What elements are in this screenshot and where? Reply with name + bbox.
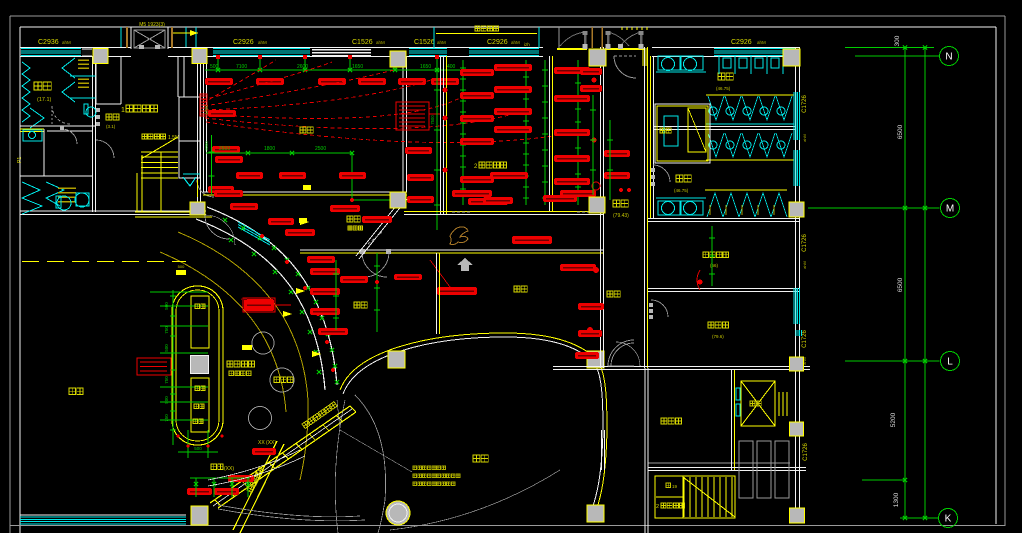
svg-text:500: 500 xyxy=(164,302,169,310)
svg-text:3200: 3200 xyxy=(204,141,209,151)
svg-text:C2926: C2926 xyxy=(731,39,752,46)
svg-text:(79.6): (79.6) xyxy=(712,334,724,339)
svg-text:750: 750 xyxy=(164,376,169,384)
svg-text:M5 1923(3): M5 1923(3) xyxy=(139,22,165,28)
svg-text:6500: 6500 xyxy=(897,124,904,139)
svg-text:C2926: C2926 xyxy=(487,39,508,46)
svg-text:ahM: ahM xyxy=(802,261,807,269)
svg-text:C1726: C1726 xyxy=(803,443,809,461)
svg-text:(3.1): (3.1) xyxy=(106,124,116,129)
svg-text:2600: 2600 xyxy=(297,64,308,70)
svg-text:C1526: C1526 xyxy=(352,39,373,46)
svg-text:2600: 2600 xyxy=(219,146,230,152)
svg-text:N: N xyxy=(945,52,952,63)
svg-text:1650: 1650 xyxy=(352,64,363,70)
svg-text:750: 750 xyxy=(164,326,169,334)
svg-text:C1726: C1726 xyxy=(802,95,808,113)
svg-text:ahM: ahM xyxy=(62,40,71,45)
svg-text:(46.75): (46.75) xyxy=(716,86,731,91)
svg-text:19: 19 xyxy=(672,484,678,489)
svg-text:C1726: C1726 xyxy=(802,330,808,348)
svg-text:500: 500 xyxy=(164,396,169,404)
svg-text:6500: 6500 xyxy=(897,277,904,292)
svg-text:P1: P1 xyxy=(17,157,23,163)
svg-text:7100: 7100 xyxy=(236,64,247,70)
svg-text:(79.43): (79.43) xyxy=(613,213,629,219)
svg-text:L: L xyxy=(947,357,953,368)
svg-text:(46.75): (46.75) xyxy=(674,188,689,193)
svg-text:(66): (66) xyxy=(710,263,719,268)
svg-text:ahM: ahM xyxy=(511,40,520,45)
svg-text:ahM: ahM xyxy=(757,40,766,45)
svg-text:1: 1 xyxy=(121,107,125,114)
svg-text:500: 500 xyxy=(210,64,219,70)
svg-text:500: 500 xyxy=(194,446,202,451)
svg-text:C1526: C1526 xyxy=(414,39,435,46)
svg-text:300: 300 xyxy=(894,35,901,46)
svg-text:500: 500 xyxy=(164,344,169,352)
svg-text:ahM: ahM xyxy=(437,40,446,45)
svg-text:2500: 2500 xyxy=(315,146,326,152)
svg-text:izh: izh xyxy=(524,42,530,47)
svg-text:1650: 1650 xyxy=(420,64,431,70)
svg-text:500: 500 xyxy=(178,264,185,269)
svg-text:750: 750 xyxy=(164,414,169,422)
svg-text:1800: 1800 xyxy=(264,146,275,152)
svg-text:5200: 5200 xyxy=(890,412,897,427)
svg-text:2: 2 xyxy=(656,504,659,510)
svg-text:C2926: C2926 xyxy=(233,39,254,46)
svg-text:C1726: C1726 xyxy=(802,234,808,252)
svg-text:ahM: ahM xyxy=(376,40,385,45)
svg-text:K: K xyxy=(945,514,952,525)
svg-text:ahM: ahM xyxy=(802,134,807,142)
svg-text:7500: 7500 xyxy=(430,115,435,125)
svg-text:(XX): (XX) xyxy=(224,466,234,472)
svg-text:M: M xyxy=(946,204,954,215)
svg-text:C2936: C2936 xyxy=(38,39,59,46)
svg-text:400: 400 xyxy=(447,64,456,70)
svg-text:ahM: ahM xyxy=(258,40,267,45)
svg-text:1300: 1300 xyxy=(893,492,900,507)
svg-text:1720: 1720 xyxy=(204,105,209,115)
svg-text:(17.1): (17.1) xyxy=(37,97,52,103)
svg-text:XX (XX): XX (XX) xyxy=(258,440,276,446)
